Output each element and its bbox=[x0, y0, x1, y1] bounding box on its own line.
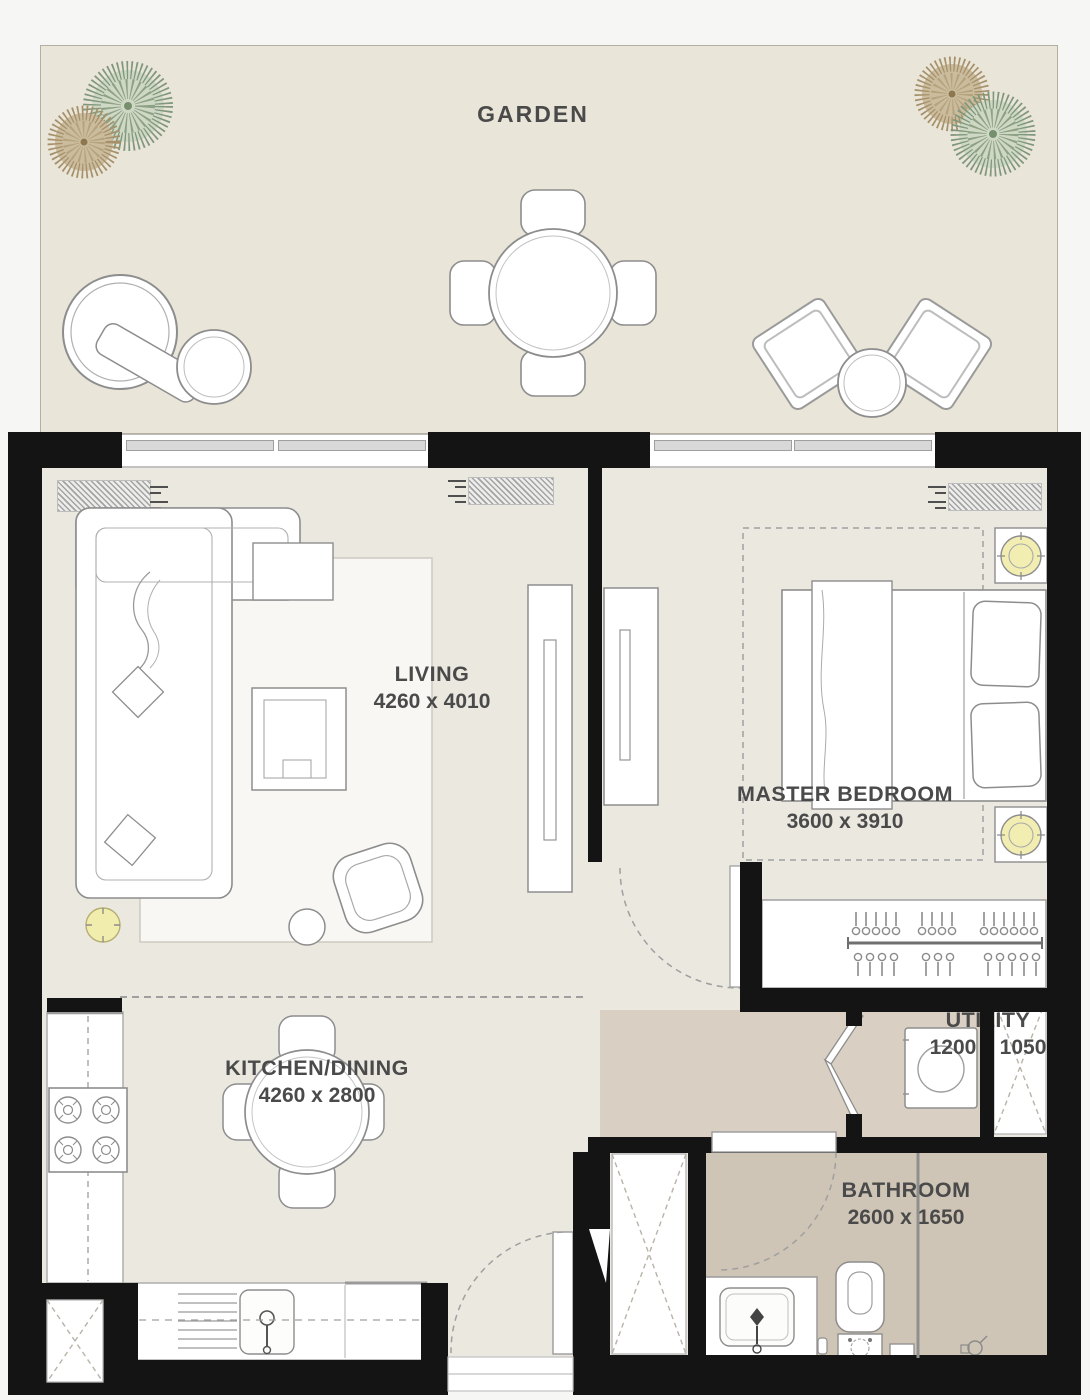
wall-notch bbox=[589, 1229, 610, 1283]
bathroom-door-leaf bbox=[712, 1132, 836, 1152]
corner-appliance-space bbox=[47, 1300, 103, 1382]
overlay-layer bbox=[0, 0, 1090, 1400]
entry-threshold bbox=[448, 1357, 573, 1391]
floor-plan: GARDEN LIVING 4260 x 4010 MASTER BEDROOM… bbox=[0, 0, 1090, 1400]
